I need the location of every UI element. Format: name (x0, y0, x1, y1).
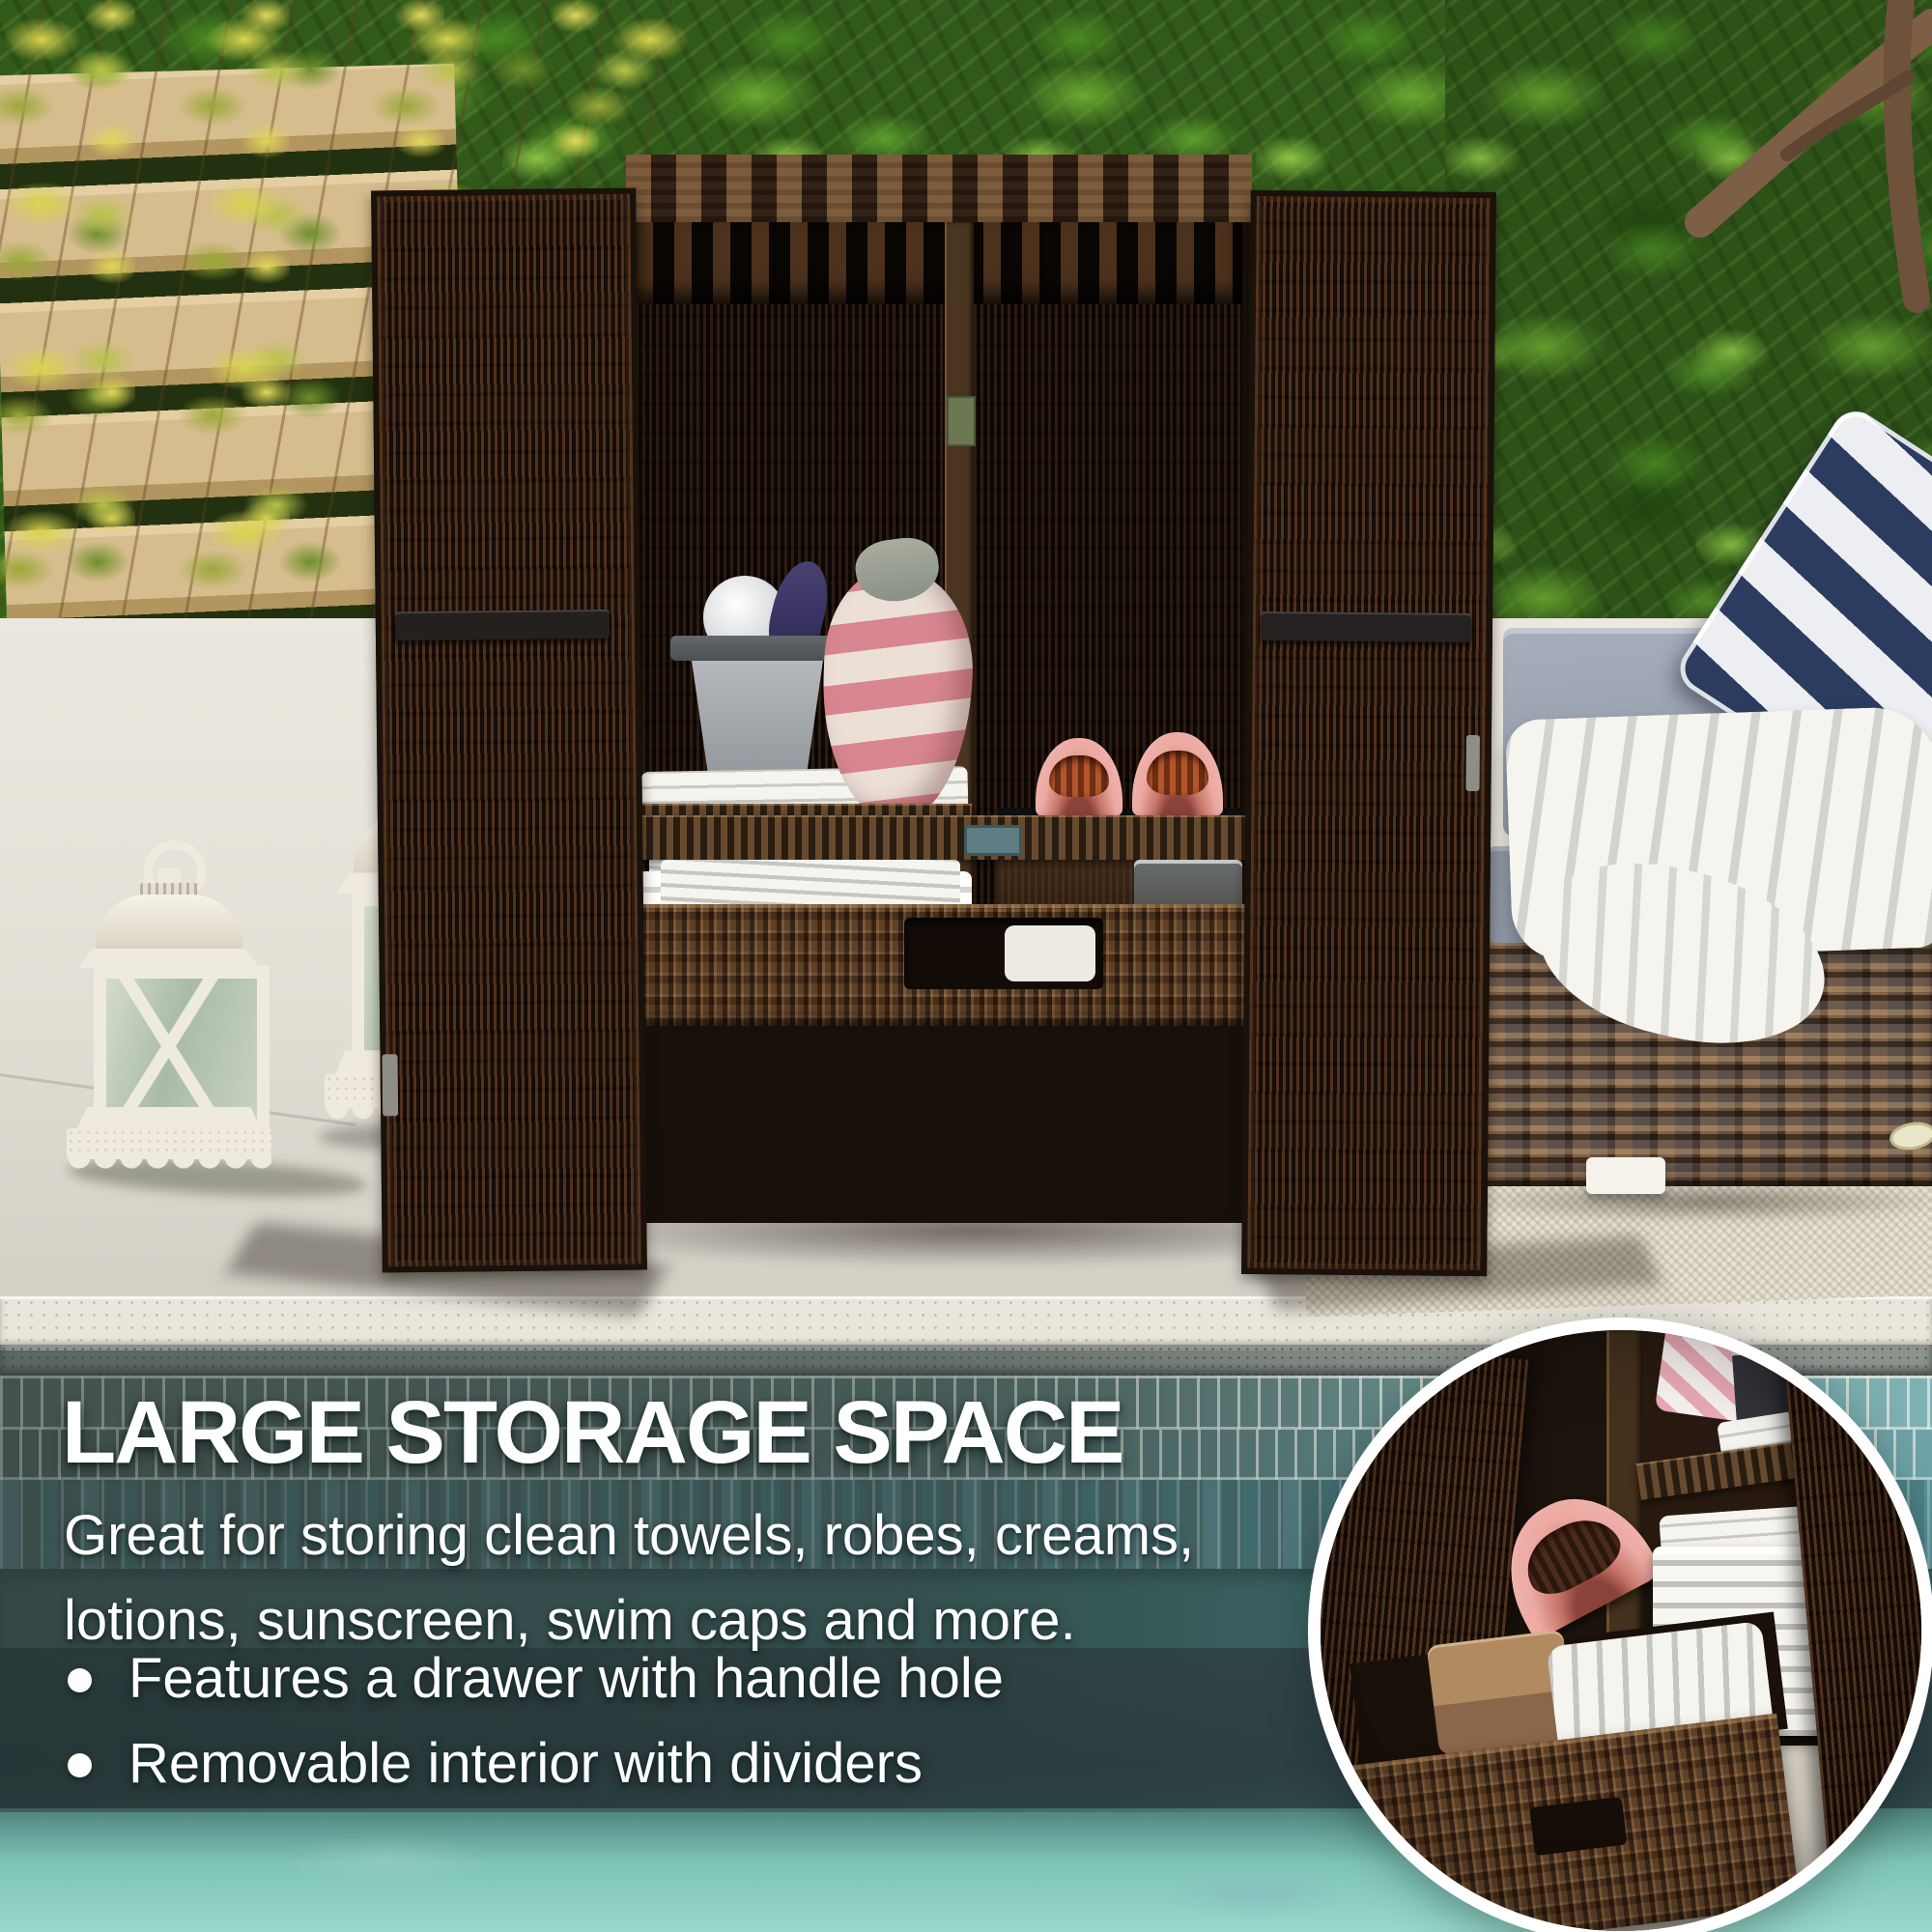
bullet-text: Removable interior with dividers (128, 1721, 923, 1806)
slipper-opening (1147, 751, 1208, 795)
cabinet-base-bar (632, 1026, 1246, 1041)
inset-white-basket (1653, 1547, 1846, 1736)
cabinet-right-door (1241, 190, 1496, 1276)
bullet-dot-icon (68, 1668, 92, 1692)
lower-shelf (626, 815, 1252, 860)
headline: LARGE STORAGE SPACE (62, 1387, 1123, 1480)
sofa-shadow (1459, 1180, 1932, 1223)
inset-drawer-handle-hole (1529, 1797, 1627, 1856)
inset-tan-towels (1427, 1630, 1577, 1755)
towel-in-handle-hole (1005, 925, 1095, 981)
right-door-latch (1465, 735, 1480, 791)
inset-pink-striped-towel (1655, 1318, 1767, 1424)
feature-bullet: Removable interior with dividers (68, 1721, 1004, 1806)
planter-rim (670, 636, 844, 661)
lantern-base-flare (76, 1107, 262, 1130)
drawer-handle-hole (904, 918, 1103, 989)
left-door-latch (383, 1054, 399, 1116)
slipper-opening (1514, 1506, 1629, 1605)
cabinet-roof (626, 155, 1252, 222)
shelf-clip (964, 825, 1022, 856)
lantern-dome (96, 895, 242, 952)
inset-drawer-cavity (1350, 1612, 1788, 1781)
inset-drawer-front (1334, 1714, 1801, 1932)
cabinet-left-door (371, 188, 647, 1273)
lantern-plinth (67, 1128, 271, 1159)
feature-bullet-list: Features a drawer with handle hole Remov… (68, 1636, 1004, 1806)
description-line-1: Great for storing clean towels, robes, c… (64, 1493, 1194, 1578)
drawer-detail-inset (1308, 1318, 1932, 1932)
feature-bullet: Features a drawer with handle hole (68, 1636, 1004, 1721)
lantern-scallop-skirt (67, 1157, 271, 1171)
poolside-product-scene: LARGE STORAGE SPACE Great for storing cl… (0, 0, 1932, 1932)
inset-shelf (1636, 1429, 1890, 1500)
drawer-front (628, 904, 1250, 1026)
inset-right-door (1785, 1354, 1932, 1932)
inset-center-post (1606, 1330, 1643, 1747)
storage-cabinet-body (626, 155, 1252, 1223)
divider-hinge (947, 396, 976, 446)
candle-lantern-front (43, 840, 295, 1174)
sofa-foot (1586, 1157, 1665, 1194)
inset-left-door (1308, 1342, 1528, 1928)
inset-white-towel-roll (1547, 1621, 1776, 1760)
inset-basket-towels (1659, 1504, 1842, 1575)
right-door-handle (1261, 611, 1471, 642)
slipper-opening (1049, 755, 1108, 797)
bullet-dot-icon (68, 1753, 92, 1777)
tree-branch-icon (1642, 0, 1932, 386)
lantern-roof-lip (78, 949, 260, 968)
cabinet-ceiling-slats (636, 222, 1242, 309)
bullet-text: Features a drawer with handle hole (128, 1636, 1004, 1721)
inset-pink-slipper (1482, 1473, 1663, 1642)
left-door-handle (395, 610, 610, 640)
